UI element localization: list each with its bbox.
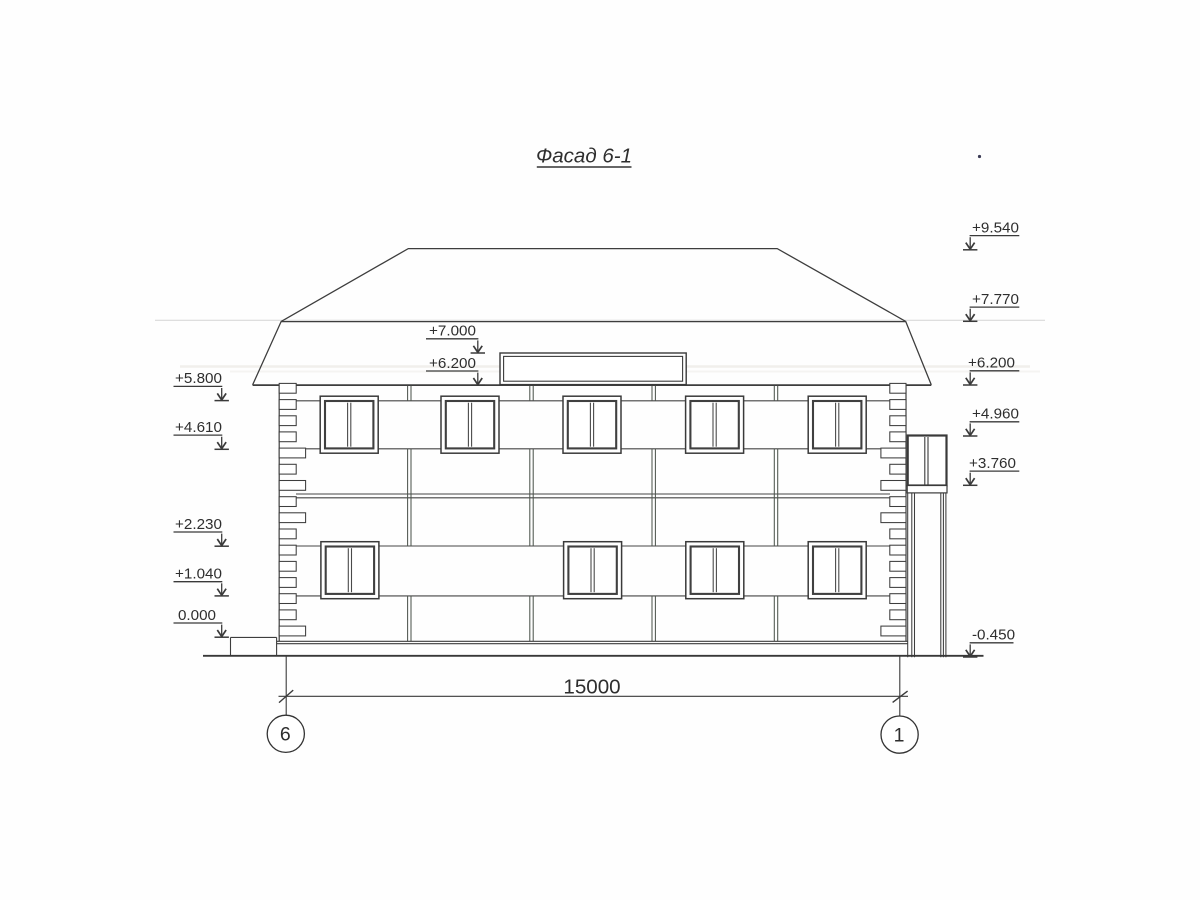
svg-text:1: 1 — [894, 724, 905, 746]
svg-text:+6.200: +6.200 — [968, 355, 1015, 372]
svg-text:+7.000: +7.000 — [429, 323, 476, 340]
svg-text:Фасад 6-1: Фасад 6-1 — [536, 145, 632, 168]
svg-text:+3.760: +3.760 — [969, 455, 1016, 472]
svg-text:0.000: 0.000 — [178, 607, 216, 624]
svg-text:+7.770: +7.770 — [972, 291, 1019, 308]
svg-text:+9.540: +9.540 — [972, 219, 1019, 236]
svg-text:+6.200: +6.200 — [429, 355, 476, 372]
svg-text:-0.450: -0.450 — [972, 627, 1015, 644]
svg-text:15000: 15000 — [563, 675, 620, 698]
svg-text:+5.800: +5.800 — [175, 370, 222, 387]
svg-text:+4.610: +4.610 — [175, 419, 222, 436]
svg-text:+4.960: +4.960 — [972, 406, 1019, 423]
svg-text:+2.230: +2.230 — [175, 516, 222, 533]
svg-text:+1.040: +1.040 — [175, 566, 222, 583]
svg-text:6: 6 — [280, 724, 291, 746]
